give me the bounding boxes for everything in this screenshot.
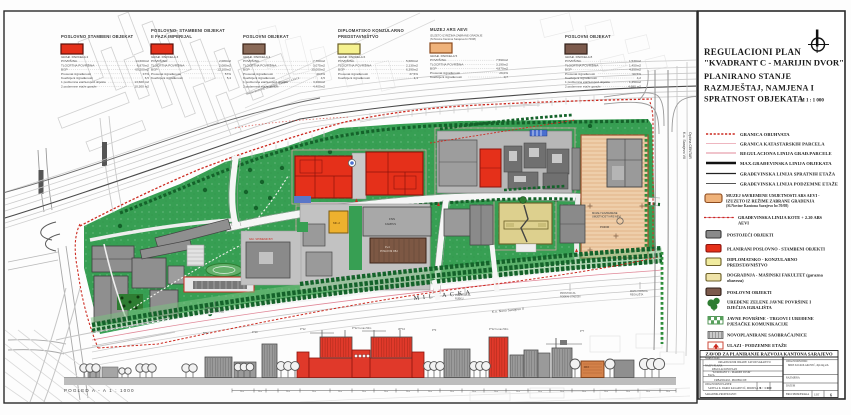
svg-text:RIJEKU: RIJEKU bbox=[455, 298, 464, 301]
svg-text:POSLOVNI OBJEKTI: POSLOVNI OBJEKTI bbox=[727, 290, 772, 295]
svg-text:3P*10: 3P*10 bbox=[398, 327, 406, 331]
svg-text:1 : 1 000: 1 : 1 000 bbox=[760, 386, 772, 390]
svg-text:5P*2: 5P*2 bbox=[203, 331, 209, 335]
svg-text:URBANIZAM - PROJEKCIJE: URBANIZAM - PROJEKCIJE bbox=[714, 379, 747, 382]
svg-text:POSLOVNI OBJEKAT: POSLOVNI OBJEKAT bbox=[243, 34, 289, 39]
svg-text:REGULACIONI PLAN: REGULACIONI PLAN bbox=[704, 47, 801, 57]
svg-text:POSLOVNO STAMBENI OBJEKAT: POSLOVNO STAMBENI OBJEKAT bbox=[61, 34, 134, 39]
svg-text:24m: 24m bbox=[240, 391, 244, 393]
svg-text:POGLED A - A 1 : 1000: POGLED A - A 1 : 1000 bbox=[64, 388, 135, 393]
svg-text:K.o. Sarajevo VII: K.o. Sarajevo VII bbox=[682, 132, 686, 159]
svg-text:1,1: 1,1 bbox=[414, 76, 419, 80]
svg-text:24m: 24m bbox=[362, 391, 366, 393]
svg-text:ODGOVORNI PLANER: ODGOVORNI PLANER bbox=[705, 383, 732, 386]
svg-text:GRANICA OBUHVATA: GRANICA OBUHVATA bbox=[740, 132, 790, 137]
svg-text:P*0: P*0 bbox=[432, 328, 437, 332]
svg-text:FNS: FNS bbox=[389, 217, 395, 221]
svg-text:RAZMJEŠTAJ, NAMJENA I: RAZMJEŠTAJ, NAMJENA I bbox=[704, 83, 814, 93]
svg-text:MIRS KO-KOLAKOVIĆ, dipl.ing.ar: MIRS KO-KOLAKOVIĆ, dipl.ing.arh. bbox=[788, 364, 829, 367]
svg-text:24m: 24m bbox=[286, 391, 290, 393]
svg-text:DIPLOMATSKO - KONZULARNO: DIPLOMATSKO - KONZULARNO bbox=[727, 257, 798, 262]
svg-text:P*10: P*10 bbox=[252, 330, 258, 334]
svg-text:MF-2: MF-2 bbox=[333, 221, 340, 225]
svg-text:RAMPU GARAŽE: RAMPU GARAŽE bbox=[205, 311, 225, 314]
svg-text:MUZEJ SAVREMENE: MUZEJ SAVREMENE bbox=[592, 211, 618, 215]
svg-text:4,400m2: 4,400m2 bbox=[313, 84, 325, 88]
svg-text:(Sl.Novine Kantona Sarajevo br: (Sl.Novine Kantona Sarajevo br.70/08) bbox=[726, 204, 789, 208]
svg-text:GRAĐEVINSKA LINIJA KOTE + 2.: GRAĐEVINSKA LINIJA KOTE + 2.20 ABS bbox=[738, 215, 823, 220]
svg-text:4,680 m2: 4,680 m2 bbox=[628, 84, 641, 88]
svg-text:Općina CENTAR: Općina CENTAR bbox=[688, 132, 692, 159]
svg-text:POSLOVNI OBJEKAT: POSLOVNI OBJEKAT bbox=[565, 34, 611, 39]
svg-text:UREĐENE ZELENE JAVNE POVRŠINE: UREĐENE ZELENE JAVNE POVRŠINE I bbox=[727, 299, 811, 304]
svg-text:10,300 m2: 10,300 m2 bbox=[134, 84, 149, 88]
svg-text:24m: 24m bbox=[626, 391, 630, 393]
svg-text:2 podzemne etaže garaže: 2 podzemne etaže garaže bbox=[243, 84, 279, 88]
svg-text:24m: 24m bbox=[516, 391, 520, 393]
svg-text:24m: 24m bbox=[604, 391, 608, 393]
svg-text:MUZEJ SAVREMENE UMJETNOSTI ARS: MUZEJ SAVREMENE UMJETNOSTI ARS AEVI - bbox=[726, 193, 820, 198]
svg-text:24m: 24m bbox=[312, 391, 316, 393]
svg-text:SARADNIK-PROJEKTANTI: SARADNIK-PROJEKTANTI bbox=[705, 393, 736, 396]
svg-text:MUZEJ ARS AEVI: MUZEJ ARS AEVI bbox=[430, 27, 468, 32]
svg-text:GRANICA KATASTARSKIH PARCELA: GRANICA KATASTARSKIH PARCELA bbox=[740, 141, 825, 146]
svg-text:MF3: MF3 bbox=[584, 366, 589, 369]
svg-text:5,4: 5,4 bbox=[227, 76, 232, 80]
svg-text:24m: 24m bbox=[646, 391, 650, 393]
svg-text:POSTOJEĆI OBJEKTI: POSTOJEĆI OBJEKTI bbox=[727, 232, 774, 237]
svg-text:NARUČILAC: NARUČILAC bbox=[705, 357, 720, 360]
svg-text:PJEŠAČKE KOMUNIKACIJE: PJEŠAČKE KOMUNIKACIJE bbox=[727, 322, 788, 327]
svg-text:P*12 h-max.50m: P*12 h-max.50m bbox=[489, 327, 508, 331]
svg-text:JAVNE POVRŠINE - TRGOVI I UREĐ: JAVNE POVRŠINE - TRGOVI I UREĐENE bbox=[727, 316, 814, 321]
svg-text:REGULACIONA LINIJA GRAĐ.PARCEL: REGULACIONA LINIJA GRAĐ.PARCELE bbox=[740, 151, 832, 156]
svg-text:24m: 24m bbox=[560, 391, 564, 393]
svg-text:Koeficijent izgrađenosti: Koeficijent izgrađenosti bbox=[430, 75, 462, 79]
svg-text:24m: 24m bbox=[338, 391, 342, 393]
svg-text:6: 6 bbox=[830, 392, 832, 397]
svg-text:P*7: P*7 bbox=[580, 329, 585, 333]
svg-text:DOGRADNJA - MAŠINSKI FAKULTET: DOGRADNJA - MAŠINSKI FAKULTET (garazna bbox=[727, 272, 824, 277]
svg-text:ULAZI - PODZEMNE ETAŽE: ULAZI - PODZEMNE ETAŽE bbox=[727, 343, 787, 348]
svg-text:24m: 24m bbox=[494, 391, 498, 393]
svg-text:BROJ PRIMJERAKA: BROJ PRIMJERAKA bbox=[786, 393, 809, 396]
svg-text:PREDSTAVNIŠTVO: PREDSTAVNIŠTVO bbox=[338, 34, 379, 39]
svg-text:SPRATNOST OBJEKATA: SPRATNOST OBJEKATA bbox=[704, 95, 804, 104]
svg-text:DJEČIJA IGRALIŠTA: DJEČIJA IGRALIŠTA bbox=[727, 305, 773, 310]
svg-text:DIPLOMATSKO KONZULARNO: DIPLOMATSKO KONZULARNO bbox=[338, 28, 405, 33]
svg-text:"KVADRANT C - MARIJIN DVOR": "KVADRANT C - MARIJIN DVOR" bbox=[712, 371, 751, 374]
svg-text:ODGOVORNI ĐIR:: ODGOVORNI ĐIR: bbox=[786, 360, 808, 363]
svg-text:0,7: 0,7 bbox=[504, 75, 509, 79]
svg-text:"KVADRANT C - MARIJIN DVOR": "KVADRANT C - MARIJIN DVOR" bbox=[704, 58, 844, 68]
svg-text:POSLOVNO- STAMBENI OBJEKAT: POSLOVNO- STAMBENI OBJEKAT bbox=[151, 28, 225, 33]
svg-text:PREDSTAVNIŠTVO: PREDSTAVNIŠTVO bbox=[727, 263, 768, 268]
svg-text:RAZMJERA: RAZMJERA bbox=[786, 377, 800, 380]
svg-text:POZOR: POZOR bbox=[600, 225, 609, 229]
svg-text:Koeficijent izgrađenosti: Koeficijent izgrađenosti bbox=[151, 76, 183, 80]
svg-text:P*12 h-max.50m: P*12 h-max.50m bbox=[352, 326, 371, 330]
svg-text:PLANIRANI POSLOVNO - STAMBENI: PLANIRANI POSLOVNO - STAMBENI OBJEKTI bbox=[727, 246, 825, 251]
svg-text:P*12: P*12 bbox=[300, 327, 306, 331]
svg-text:GRAĐEVINSKA LINIJA PODZEMNE E: GRAĐEVINSKA LINIJA PODZEMNE ETAŽE bbox=[740, 181, 838, 186]
svg-text:SANELA K. DARIO KASAPOVIĆ, MIR: SANELA K. DARIO KASAPOVIĆ, MIRZELA B. bbox=[708, 387, 762, 390]
svg-text:24m: 24m bbox=[582, 391, 586, 393]
svg-text:P+4: P+4 bbox=[385, 245, 390, 249]
svg-text:24m: 24m bbox=[406, 391, 410, 393]
svg-text:FAZA: FAZA bbox=[708, 374, 715, 377]
svg-text:Koeficijent izgrađenosti: Koeficijent izgrađenosti bbox=[338, 76, 370, 80]
svg-text:REGALIŠTA: REGALIŠTA bbox=[630, 294, 644, 297]
svg-text:GRAĐEVINSKA LINIJA SPRATNIH ET: GRAĐEVINSKA LINIJA SPRATNIH ETAŽA bbox=[740, 171, 836, 176]
svg-text:24m: 24m bbox=[538, 391, 542, 393]
svg-text:24m: 24m bbox=[428, 391, 432, 393]
svg-text:II FAZA IMPERIJAL: II FAZA IMPERIJAL bbox=[151, 34, 192, 39]
svg-text:DATUM: DATUM bbox=[786, 385, 796, 388]
svg-text:24m: 24m bbox=[666, 391, 670, 393]
svg-text:NOVOPLANIRANE SAOBRAĆAJNICE: NOVOPLANIRANE SAOBRAĆAJNICE bbox=[727, 332, 807, 337]
svg-text:IZUZETO IZ REŽIME ZABRANE GRAD: IZUZETO IZ REŽIME ZABRANE GRADENJA bbox=[726, 198, 814, 203]
svg-text:MAX.GRAĐEVINSKA LINIJA OBJEKAT: MAX.GRAĐEVINSKA LINIJA OBJEKATA bbox=[740, 161, 832, 166]
svg-text:2 podzemne etaže garaže: 2 podzemne etaže garaže bbox=[565, 84, 601, 88]
svg-text:ZAVOD ZA PLANIRANJE RAZVOJA KA: ZAVOD ZA PLANIRANJE RAZVOJA KANTONA SARA… bbox=[705, 352, 832, 357]
svg-text:(Sl.Novine Kantona Sarajeva br: (Sl.Novine Kantona Sarajeva br.70/08) bbox=[430, 37, 476, 41]
svg-text:M 1 : 1 000: M 1 : 1 000 bbox=[800, 99, 824, 104]
svg-text:AEVI: AEVI bbox=[738, 221, 749, 226]
svg-text:POSLOVNI OBJ.: POSLOVNI OBJ. bbox=[380, 250, 399, 253]
svg-text:LIST: LIST bbox=[814, 393, 820, 396]
svg-text:obaveza): obaveza) bbox=[727, 278, 744, 283]
svg-text:ORGANIZATOR IZRADE: ZAVOD SARA: ORGANIZATOR IZRADE: ZAVOD SARAJEVO bbox=[718, 361, 771, 364]
svg-text:NAC. SPOMENIK BiH: NAC. SPOMENIK BiH bbox=[249, 238, 273, 241]
svg-text:24m: 24m bbox=[258, 391, 262, 393]
svg-text:24m: 24m bbox=[384, 391, 388, 393]
svg-text:ROĐENI STADION: ROĐENI STADION bbox=[560, 296, 581, 299]
svg-text:KAMPUS: KAMPUS bbox=[385, 222, 396, 226]
svg-text:24m: 24m bbox=[450, 391, 454, 393]
svg-text:UMJETNOSTI ARS AEVI: UMJETNOSTI ARS AEVI bbox=[592, 215, 621, 219]
svg-text:24m: 24m bbox=[472, 391, 476, 393]
svg-text:2 podzemne etaže garaže: 2 podzemne etaže garaže bbox=[61, 84, 97, 88]
svg-text:PLANIRANO STANJE: PLANIRANO STANJE bbox=[704, 72, 791, 81]
